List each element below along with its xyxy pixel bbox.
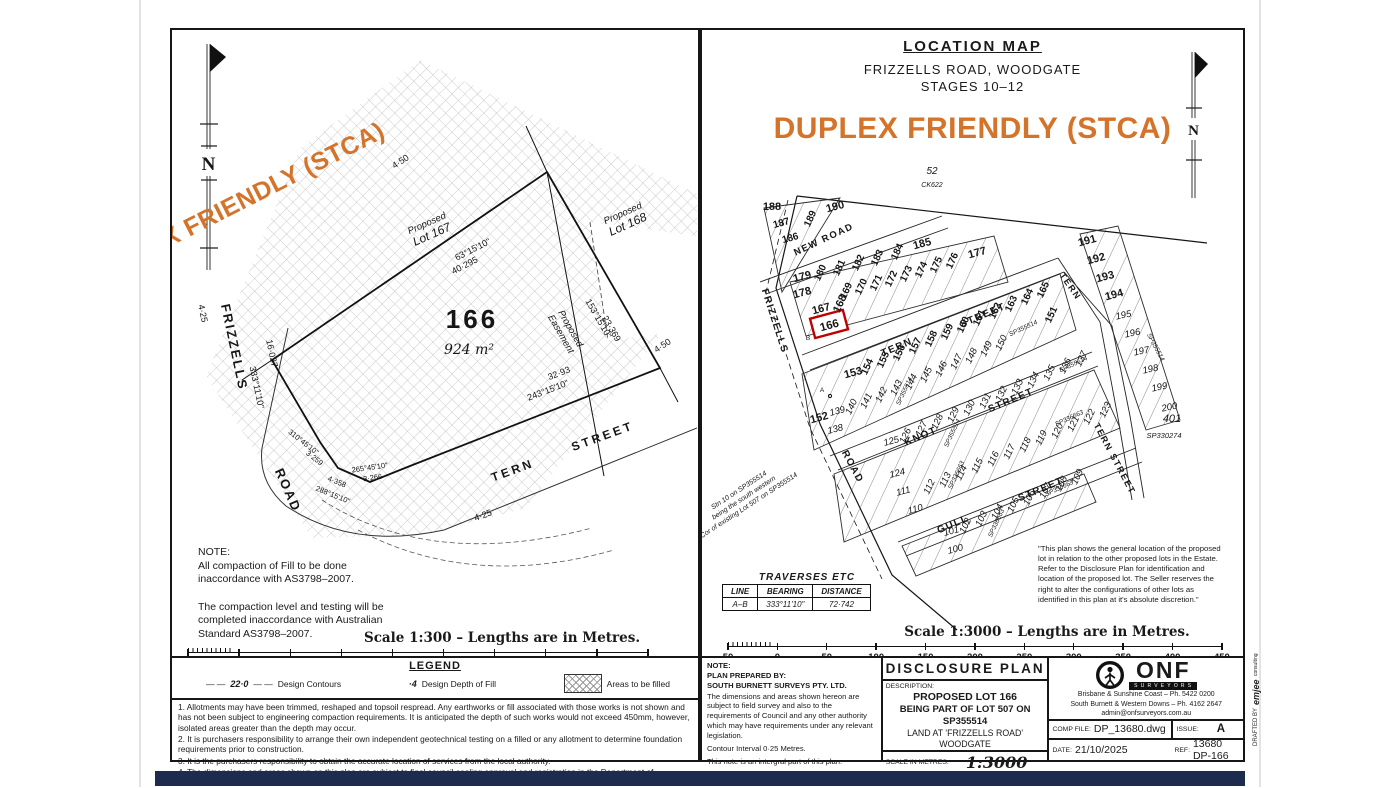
map-title: LOCATION MAP	[702, 38, 1243, 56]
depth-symbol: ·4	[409, 679, 417, 689]
legend-box: LEGEND — —22·0— — Design Contours ·4 Des…	[170, 658, 700, 700]
description-line-3: LAND AT 'FRIZZELLS ROAD'	[883, 728, 1048, 739]
lot-166-labels: 166 924 m²	[444, 304, 498, 358]
lot-number: 166	[446, 304, 498, 334]
parcel-52: 52 CK622	[921, 166, 943, 189]
traverse-row: A–B 333°11'10" 72·742	[723, 598, 871, 611]
map-disclaimer: "This plan shows the general location of…	[1038, 544, 1224, 605]
hatch-swatch	[564, 674, 602, 693]
page-left-edge	[139, 0, 141, 787]
date-value: 21/10/2025	[1075, 744, 1128, 756]
plan-prepared-note-cell: NOTE: PLAN PREPARED BY: SOUTH BURNETT SU…	[702, 658, 881, 760]
drafted-by-stamp: DRAFTED BY emjee consulting	[1248, 596, 1264, 746]
tern-street-vertical-label: TERN STREET	[1092, 421, 1138, 495]
frizzells-map-label: FRIZZELLS	[759, 287, 790, 354]
note-3: 3. It is the purchasers responsibility t…	[178, 756, 692, 766]
legend-depth-of-fill: ·4 Design Depth of Fill	[409, 679, 496, 689]
scale-caption-left: Scale 1:300 – Lengths are in Metres.	[322, 630, 682, 646]
location-map-panel: 166 188 187 186 189 190 179 180 181 182 …	[700, 28, 1245, 658]
svg-text:4·25: 4·25	[196, 304, 210, 324]
drafted-by-label: DRAFTED BY	[1253, 708, 1259, 746]
description-label: DESCRIPTION:	[886, 683, 934, 690]
north-label: N	[202, 154, 216, 175]
prepared-by: SOUTH BURNETT SURVEYS PTY. LTD.	[707, 681, 876, 691]
footer-bar	[155, 771, 1245, 786]
site-plan-panel: N DUPLEX FRIENDLY (STCA) 166 924 m² Prop…	[170, 28, 700, 658]
svg-text:401: 401	[1163, 413, 1181, 425]
plan-type-title: DISCLOSURE PLAN	[883, 658, 1048, 681]
description-line-1: PROPOSED LOT 166	[883, 691, 1048, 704]
surveyor-contact-2: South Burnett & Western Downs – Ph. 4162…	[1049, 701, 1243, 710]
note-1: 1. Allotments may have been trimmed, res…	[178, 702, 692, 733]
note-2: 2. It is purchasers responsibility to ar…	[178, 734, 692, 755]
surveyor-contact-1: Brisbane & Sunshine Coast – Ph. 5422 020…	[1049, 691, 1243, 700]
marker-b: B	[806, 335, 810, 342]
duplex-banner-right: DUPLEX FRIENDLY (STCA)	[702, 112, 1243, 146]
issue-value: A	[1217, 723, 1225, 735]
contour-interval: Contour Interval 0·25 Metres.	[707, 744, 876, 754]
svg-text:185: 185	[912, 236, 933, 252]
comp-file-row: COMP FILE:DP_13680.dwg ISSUE:A	[1049, 721, 1243, 738]
lot-area: 924 m²	[444, 342, 494, 358]
scale-in-metres: SCALE IN METRES: 1:3000	[883, 750, 1048, 773]
onf-logo-icon	[1095, 660, 1125, 690]
svg-text:CK622: CK622	[921, 182, 943, 189]
svg-text:135: 135	[1041, 363, 1058, 383]
map-address: FRIZZELLS ROAD, WOODGATE	[702, 62, 1243, 77]
scale-caption-right: Scale 1:3000 – Lengths are in Metres.	[852, 624, 1242, 640]
map-stages: STAGES 10–12	[702, 79, 1243, 94]
svg-text:188: 188	[763, 201, 781, 213]
compaction-note: NOTE: All compaction of Fill to be done …	[198, 546, 438, 641]
integral-note: This note is an intergral part of this p…	[707, 757, 876, 767]
surveyor-email: admin@onfsurveyors.com.au	[1049, 710, 1243, 719]
marker-a: A	[820, 387, 825, 394]
note-body: The dimensions and areas shown hereon ar…	[707, 692, 876, 741]
ref-value: 13680 DP-166	[1193, 738, 1240, 762]
drafter-brand: emjee	[1251, 679, 1261, 705]
traverses-table: TRAVERSES ETC LINE BEARING DISTANCE A–B …	[722, 572, 892, 611]
description-line-4: WOODGATE	[883, 739, 1048, 750]
drafter-brand-sub: consulting	[1253, 654, 1259, 677]
general-notes-box: 1. Allotments may have been trimmed, res…	[170, 700, 700, 762]
fill-hatch-area	[206, 60, 697, 538]
svg-text:SP330274: SP330274	[1146, 431, 1181, 440]
surveyor-logo-subtext: SURVEYORS	[1129, 682, 1197, 690]
date-ref-row: DATE:21/10/2025 REF:13680 DP-166	[1049, 738, 1243, 760]
title-block: NOTE: PLAN PREPARED BY: SOUTH BURNETT SU…	[700, 658, 1245, 762]
svg-text:52: 52	[926, 166, 938, 177]
description-line-2: BEING PART OF LOT 507 ON SP355514	[883, 704, 1048, 728]
surveyor-logo-text: ONF	[1136, 660, 1191, 681]
legend-design-contours: — —22·0— — Design Contours	[206, 679, 341, 689]
disclosure-plan-cell: DISCLOSURE PLAN DESCRIPTION: PROPOSED LO…	[881, 658, 1048, 760]
legend-areas-to-be-filled: Areas to be filled	[564, 674, 670, 693]
contour-symbol: — —	[206, 679, 225, 689]
comp-file-value: DP_13680.dwg	[1094, 723, 1166, 735]
legend-title: LEGEND	[172, 660, 698, 672]
surveyor-cell: ONF SURVEYORS Brisbane & Sunshine Coast …	[1047, 658, 1243, 760]
